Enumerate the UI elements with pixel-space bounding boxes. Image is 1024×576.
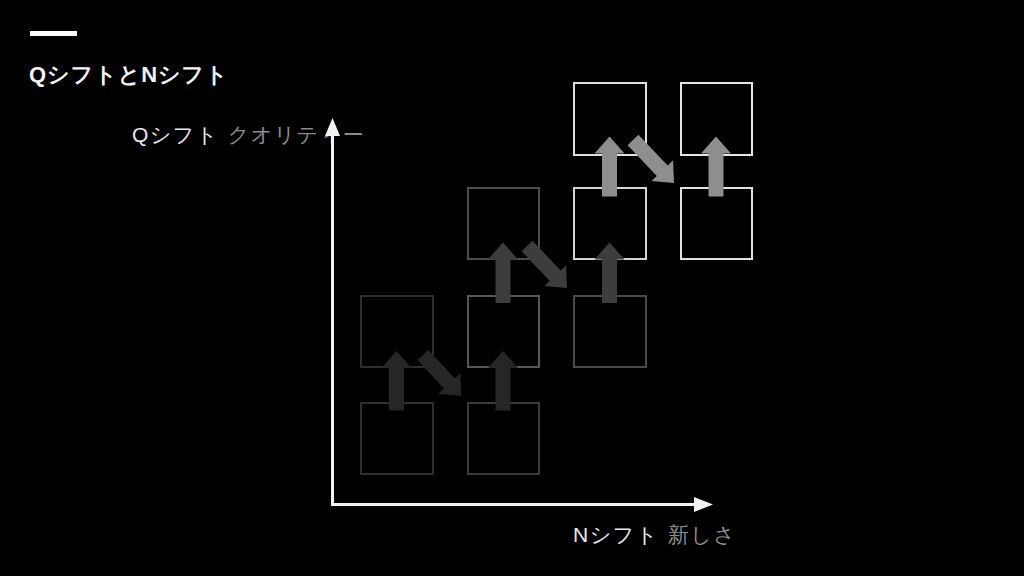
n-shift-arrow-1 (418, 350, 462, 396)
q-shift-arrow-3 (488, 243, 518, 304)
q-shift-arrow-6 (701, 137, 731, 197)
q-shift-arrow-4 (595, 243, 625, 304)
q-shift-arrow-2 (488, 351, 518, 411)
n-shift-arrow-2 (522, 241, 567, 288)
slide: QシフトとNシフト Qシフトクオリティー Nシフト新しさ (0, 0, 1024, 576)
q-shift-arrow-1 (382, 351, 412, 411)
arrows-layer (0, 0, 1024, 576)
q-shift-arrow-5 (595, 137, 625, 197)
n-shift-arrow-3 (628, 135, 674, 183)
